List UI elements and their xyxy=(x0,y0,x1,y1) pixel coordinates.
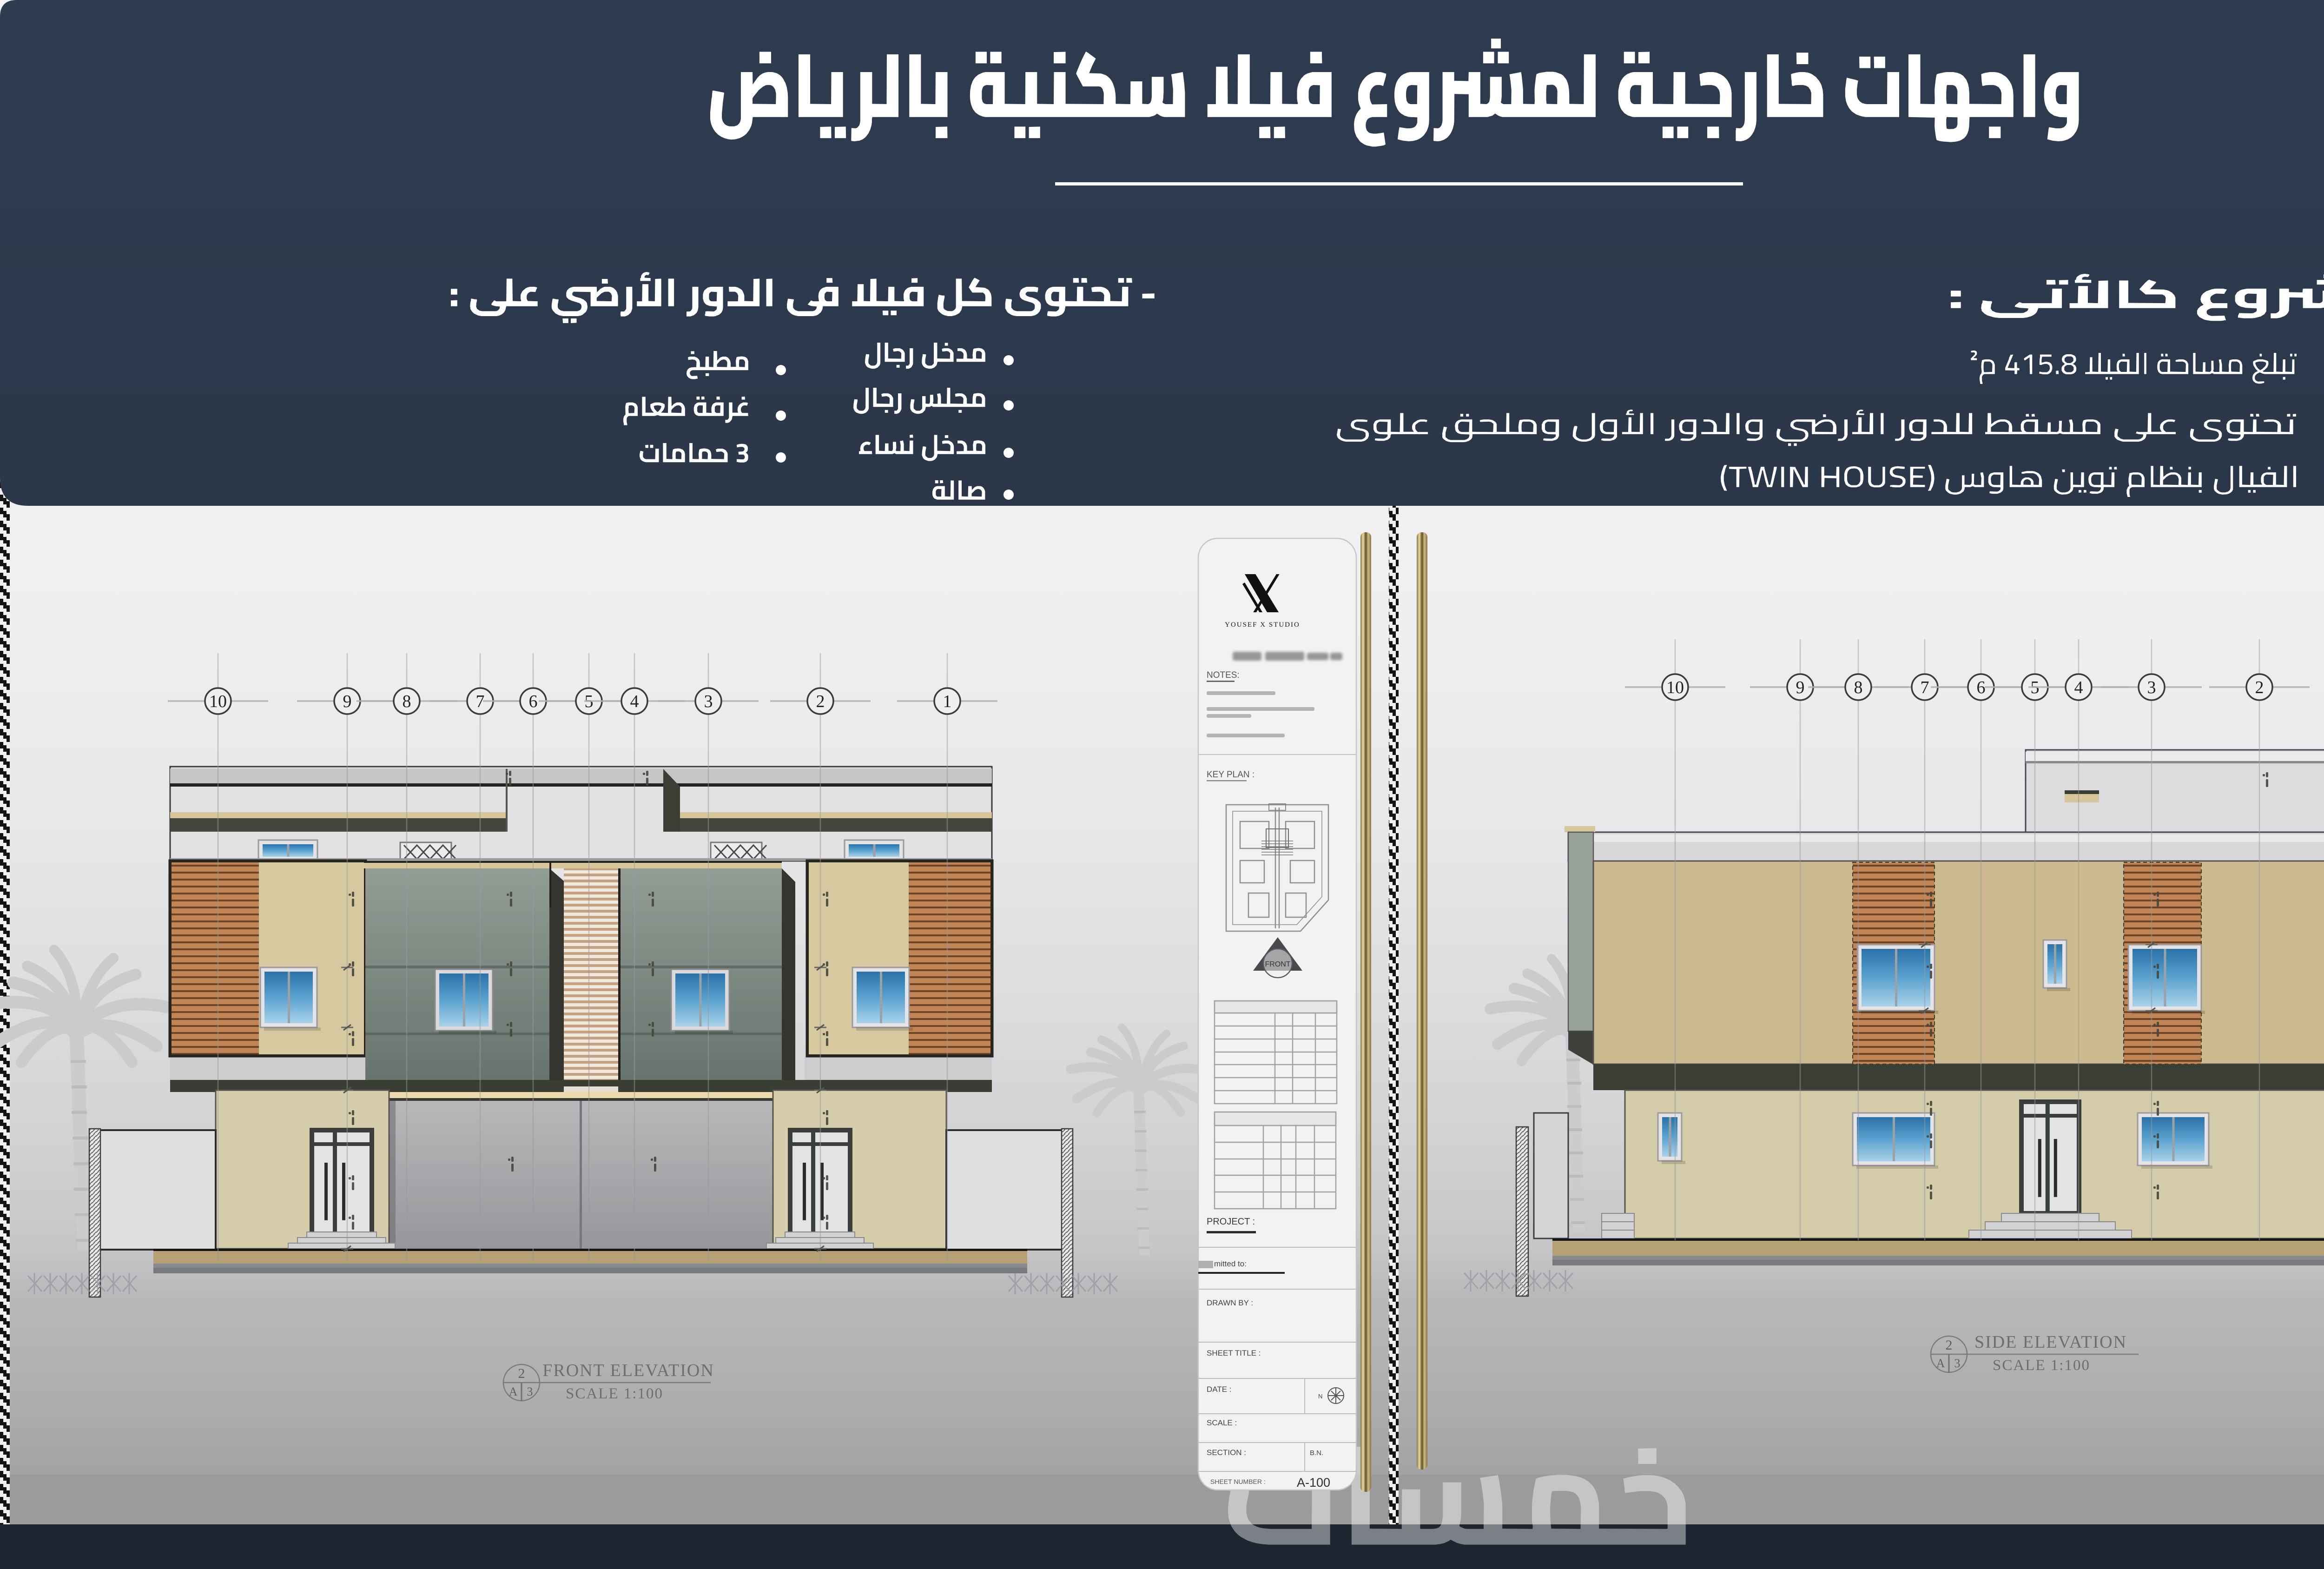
svg-text:KEY PLAN :: KEY PLAN : xyxy=(1207,770,1254,780)
svg-text:SHEET TITLE :: SHEET TITLE : xyxy=(1207,1349,1261,1357)
svg-text:B.N.: B.N. xyxy=(1310,1449,1323,1457)
svg-text:2: 2 xyxy=(816,692,825,711)
svg-text:3: 3 xyxy=(2147,678,2156,697)
svg-text:A: A xyxy=(509,1385,518,1398)
svg-text:2: 2 xyxy=(1946,1337,1953,1353)
svg-text:SCALE 1:100: SCALE 1:100 xyxy=(566,1385,663,1402)
svg-text:10: 10 xyxy=(209,692,227,711)
svg-text:4: 4 xyxy=(2074,678,2083,697)
svg-text:mitted to:: mitted to: xyxy=(1214,1259,1247,1268)
svg-text:3: 3 xyxy=(1954,1357,1961,1370)
svg-text:DRAWN BY :: DRAWN BY : xyxy=(1207,1298,1253,1307)
svg-text:N: N xyxy=(1318,1393,1322,1400)
svg-text:YOUSEF X STUDIO: YOUSEF X STUDIO xyxy=(1225,621,1300,629)
svg-text:NOTES:: NOTES: xyxy=(1207,670,1240,680)
svg-text:6: 6 xyxy=(1977,678,1986,697)
svg-text:6: 6 xyxy=(529,692,538,711)
svg-text:A-100: A-100 xyxy=(1297,1476,1330,1490)
svg-text:1: 1 xyxy=(943,692,952,711)
svg-text:A: A xyxy=(1936,1357,1945,1370)
svg-text:SCALE :: SCALE : xyxy=(1207,1418,1237,1427)
svg-text:9: 9 xyxy=(1796,678,1805,697)
svg-text:2: 2 xyxy=(2255,678,2264,697)
svg-text:FRONT ELEVATION: FRONT ELEVATION xyxy=(542,1361,714,1380)
svg-text:9: 9 xyxy=(343,692,352,711)
svg-text:3: 3 xyxy=(704,692,713,711)
svg-text:PROJECT :: PROJECT : xyxy=(1207,1217,1255,1227)
svg-text:SHEET NUMBER :: SHEET NUMBER : xyxy=(1210,1478,1266,1485)
svg-text:2: 2 xyxy=(518,1366,525,1381)
svg-text:7: 7 xyxy=(1921,678,1929,697)
svg-text:SCALE 1:100: SCALE 1:100 xyxy=(1993,1357,2090,1374)
svg-text:8: 8 xyxy=(403,692,411,711)
svg-text:FRONT: FRONT xyxy=(1265,960,1290,968)
svg-text:3: 3 xyxy=(527,1385,533,1398)
svg-text:10: 10 xyxy=(1666,678,1684,697)
svg-text:8: 8 xyxy=(1854,678,1863,697)
svg-text:SIDE ELEVATION: SIDE ELEVATION xyxy=(1974,1332,2127,1352)
svg-text:4: 4 xyxy=(630,692,639,711)
svg-text:SECTION :: SECTION : xyxy=(1207,1448,1246,1457)
svg-text:DATE :: DATE : xyxy=(1207,1385,1232,1394)
